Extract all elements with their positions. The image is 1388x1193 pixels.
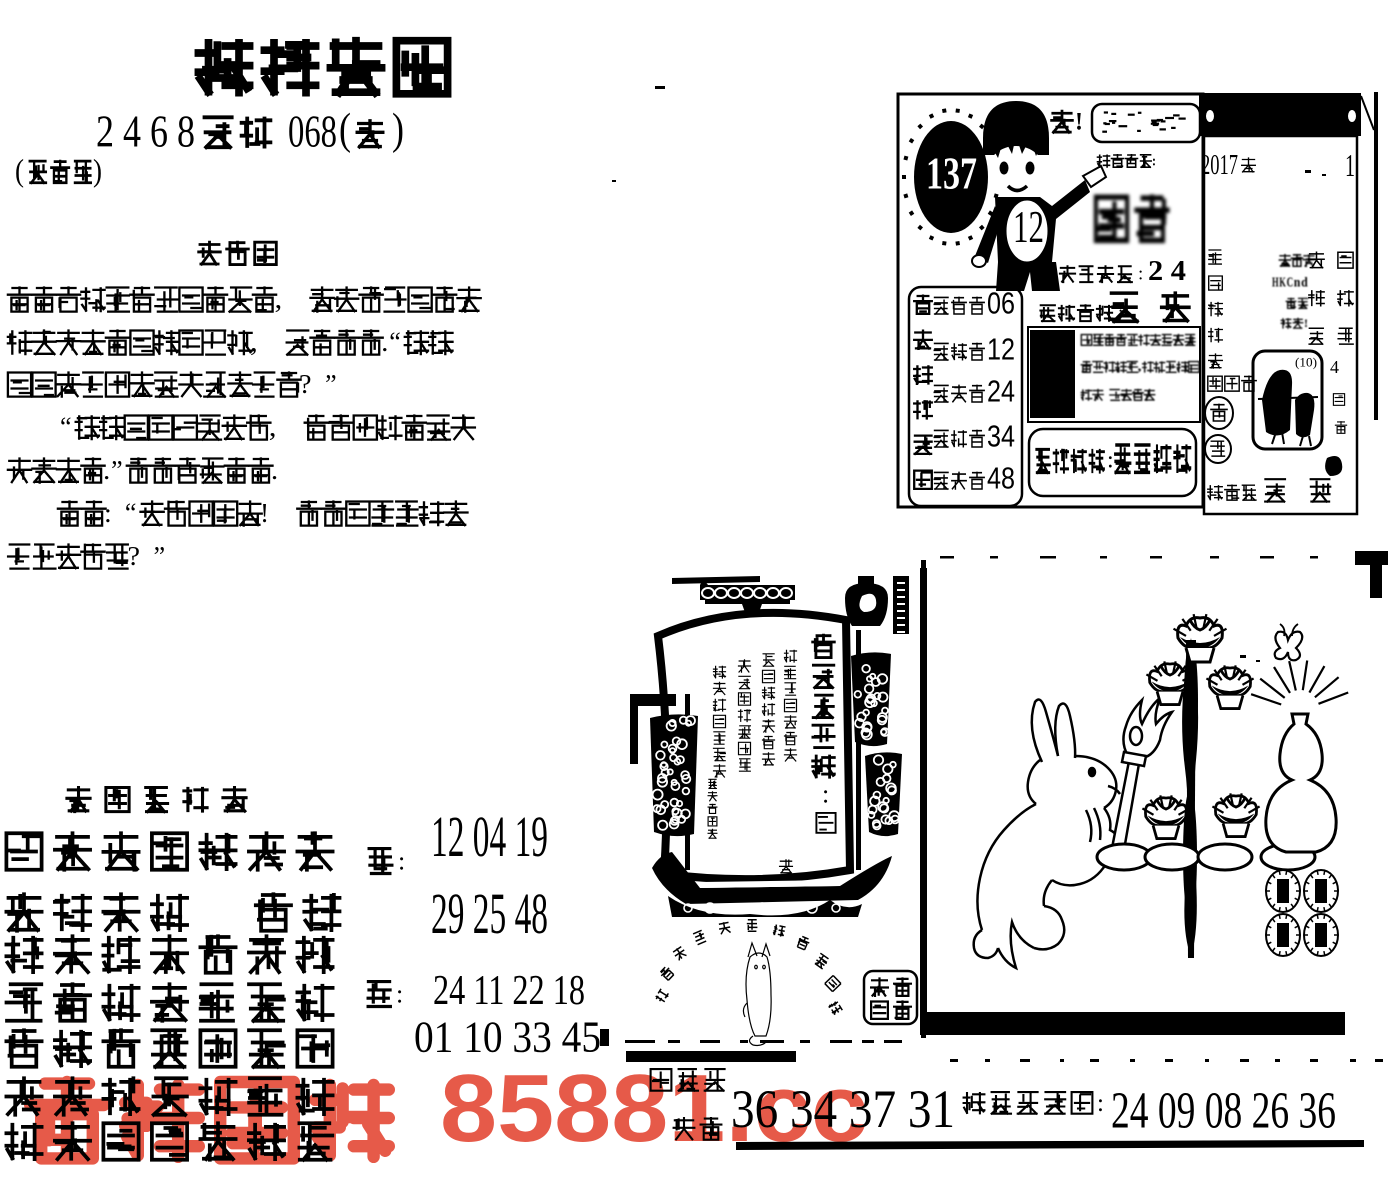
svg-text:!: ! — [260, 498, 269, 529]
svg-text:(: ( — [339, 105, 351, 154]
svg-text::: : — [1152, 153, 1156, 169]
svg-text:“: “ — [125, 498, 136, 529]
svg-text:”: ” — [154, 541, 166, 572]
svg-text:2 4 6 8: 2 4 6 8 — [96, 106, 195, 156]
svg-text:!: ! — [1075, 108, 1083, 135]
svg-text:n: n — [1294, 275, 1301, 290]
svg-text:48: 48 — [987, 460, 1015, 495]
svg-text:“: “ — [389, 327, 401, 358]
svg-text:24 09 08 26 36: 24 09 08 26 36 — [1111, 1082, 1336, 1139]
svg-text:.: . — [271, 455, 278, 486]
svg-text:24: 24 — [987, 373, 1015, 408]
svg-text:C: C — [1287, 275, 1294, 290]
svg-text:?: ? — [299, 369, 312, 400]
svg-text::: : — [1107, 447, 1114, 473]
svg-text:85881.cc: 85881.cc — [440, 1055, 868, 1162]
svg-text::: : — [396, 980, 403, 1009]
svg-text:.: . — [381, 327, 388, 358]
svg-text:,: , — [1138, 360, 1142, 374]
svg-text:34: 34 — [987, 418, 1015, 453]
svg-text:d: d — [1301, 275, 1308, 290]
svg-text:2 4: 2 4 — [1148, 256, 1186, 287]
svg-text:.: . — [103, 455, 110, 486]
svg-text:29 25 48: 29 25 48 — [431, 881, 548, 946]
svg-text::: : — [1138, 264, 1143, 285]
svg-text:,: , — [250, 327, 258, 358]
svg-text:4: 4 — [1330, 357, 1339, 377]
svg-text:K: K — [1279, 275, 1286, 290]
svg-text:!: ! — [1304, 318, 1308, 330]
svg-text::: : — [398, 847, 405, 876]
svg-text:2017: 2017 — [1201, 150, 1238, 181]
svg-text:): ) — [93, 152, 102, 188]
svg-text:(10): (10) — [1295, 354, 1317, 369]
svg-text:”: ” — [325, 369, 337, 400]
svg-text:24 11 22 18: 24 11 22 18 — [433, 968, 585, 1014]
svg-text:,: , — [269, 412, 277, 443]
svg-text::: : — [1097, 1090, 1104, 1117]
svg-text:”: ” — [111, 455, 123, 486]
svg-text:068: 068 — [288, 106, 337, 156]
svg-text::: : — [104, 498, 112, 529]
svg-text:“: “ — [60, 412, 72, 443]
svg-text::: : — [822, 780, 829, 809]
svg-text:(: ( — [15, 152, 24, 188]
svg-text:): ) — [392, 105, 404, 154]
svg-text:12 04 19: 12 04 19 — [431, 804, 548, 869]
svg-text:06: 06 — [987, 285, 1015, 320]
svg-text:137: 137 — [926, 148, 977, 198]
svg-text:1: 1 — [1345, 147, 1355, 183]
svg-text:H: H — [1272, 275, 1279, 290]
svg-text:,: , — [275, 284, 283, 315]
svg-text:12: 12 — [1013, 201, 1044, 252]
svg-text:?: ? — [128, 541, 141, 572]
svg-text:12: 12 — [987, 331, 1015, 366]
